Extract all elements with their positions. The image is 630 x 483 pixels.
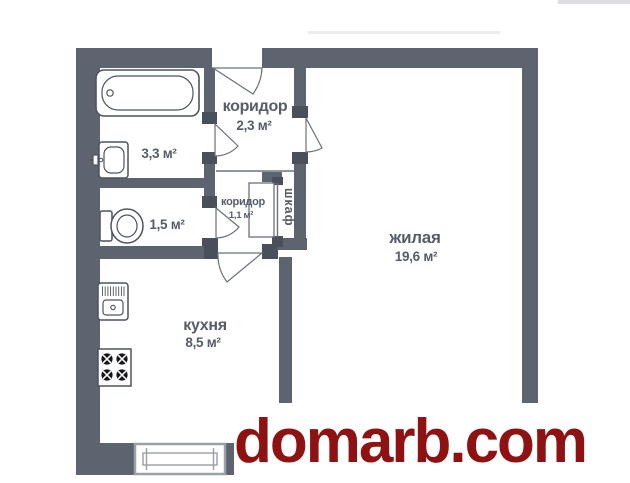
living-room-name-label: жилая xyxy=(389,228,440,248)
toilet-icon xyxy=(100,209,143,243)
entrance-door-swing xyxy=(213,68,262,94)
living-room-area-label: 19,6 м² xyxy=(395,249,437,264)
bathtub-icon xyxy=(96,70,199,116)
washbasin-icon xyxy=(89,142,128,178)
toilet-area-label: 1,5 м² xyxy=(149,217,184,232)
bathroom-area-label: 3,3 м² xyxy=(141,146,176,161)
corridor-main-name-label: коридор xyxy=(223,98,288,116)
corridor-small-name-label: коридор xyxy=(221,196,265,208)
corridor-small-area-label: 1,1 м² xyxy=(229,210,253,221)
corridor-main-area-label: 2,3 м² xyxy=(236,118,271,133)
kitchen-window-icon xyxy=(135,444,225,474)
floor-plan: 3,3 м² коридор 2,3 м² 1,5 м² коридор 1,1… xyxy=(0,0,630,483)
living-room-door-swing xyxy=(306,118,322,152)
stove-icon xyxy=(98,349,131,386)
watermark-text: domarb.com xyxy=(234,406,586,477)
closet-name-label: шкаф xyxy=(282,188,296,227)
kitchen-name-label: кухня xyxy=(183,317,227,335)
kitchen-door-swing xyxy=(218,253,262,282)
kitchen-area-label: 8,5 м² xyxy=(185,335,220,350)
kitchen-sink-icon xyxy=(98,283,128,320)
bathroom-door-swing xyxy=(215,124,238,156)
